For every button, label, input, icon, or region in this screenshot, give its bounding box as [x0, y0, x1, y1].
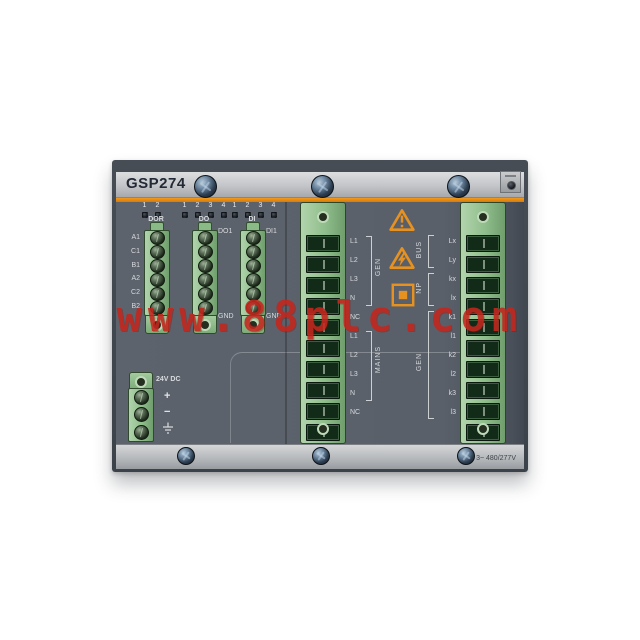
mains-bracket: [366, 331, 372, 401]
terminal-slot-icon: [306, 319, 340, 336]
pin-label: N: [350, 291, 360, 306]
gen-bracket-right: [428, 311, 434, 419]
pin-label: l2: [438, 367, 456, 382]
led-number: 2: [196, 202, 200, 210]
terminal-slot-icon: [306, 340, 340, 357]
screw-terminal-icon: [150, 259, 165, 273]
terminal-slot-icon: [306, 298, 340, 315]
mounting-hole-icon: [199, 319, 211, 331]
connector-body: [144, 230, 170, 316]
screw-terminal-icon: [150, 245, 165, 259]
connector-flange: [193, 315, 217, 334]
pin-label: kx: [438, 272, 456, 287]
screw-terminal-icon: [134, 425, 149, 440]
gen-bracket: [366, 236, 372, 306]
screw-icon: [312, 447, 330, 465]
pin-label: L3: [350, 367, 360, 382]
terminal-slot-icon: [306, 235, 340, 252]
pin-label: C2: [122, 288, 140, 297]
pin-label: L2: [350, 348, 360, 363]
terminal-slot-icon: [466, 403, 500, 420]
mounting-hole-icon: [317, 423, 329, 435]
np-bracket: [428, 273, 434, 306]
pin-label: k3: [438, 386, 456, 401]
pin-label: Lx: [438, 234, 456, 249]
terminal-slot-icon: [466, 235, 500, 252]
screw-terminal-icon: [198, 301, 213, 315]
double-insulation-icon: [390, 282, 416, 308]
screw-terminal-icon: [198, 287, 213, 301]
gsp274-module: GSP274 1 2 1 2 3 4 1 2 3 4 DOR DO DI DO1…: [112, 160, 528, 472]
pin-label: NC: [350, 310, 360, 325]
led-number: 3: [209, 202, 213, 210]
led-number: 1: [233, 202, 237, 210]
dor-pin-labels: A1 C1 B1 A2 C2 B2: [122, 231, 140, 313]
led-number: 2: [156, 202, 160, 210]
screw-icon: [177, 447, 195, 465]
pin-label: lx: [438, 291, 456, 306]
screw-icon: [194, 175, 217, 198]
plus-terminal-label: +: [164, 391, 170, 402]
led-number: 1: [183, 202, 187, 210]
gen-bracket-right-label: GEN: [416, 353, 423, 371]
led-indicator-icon: [221, 212, 227, 218]
screw-icon: [447, 175, 470, 198]
pin-label: k1: [438, 310, 456, 325]
screw-terminal-icon: [134, 407, 149, 422]
mains-bracket-label: MAINS: [375, 346, 382, 373]
plug-label-di1: DI1: [266, 227, 277, 236]
terminal-slot-icon: [466, 256, 500, 273]
screw-terminal-icon: [150, 287, 165, 301]
screw-terminal-icon: [198, 245, 213, 259]
screw-terminal-icon: [150, 231, 165, 245]
pin-label: k2: [438, 348, 456, 363]
gen-bracket-label: GEN: [375, 258, 382, 276]
mounting-hole-icon: [151, 319, 163, 331]
pin-label: l3: [438, 405, 456, 420]
gen-mains-pin-labels: L1 L2 L3 N NC L1 L2 L3 N NC: [350, 234, 360, 420]
pin-label: Ly: [438, 253, 456, 268]
screw-terminal-icon: [246, 301, 261, 315]
terminal-slot-icon: [306, 277, 340, 294]
power-label: 24V DC: [156, 375, 181, 384]
terminal-slot-icon: [306, 361, 340, 378]
gen-mains-connector: [300, 202, 346, 444]
warning-triangle-icon: [388, 206, 416, 234]
bus-bracket-label: BUS: [416, 241, 423, 258]
mounting-hole-icon: [477, 211, 489, 223]
screw-terminal-icon: [246, 245, 261, 259]
model-label: GSP274: [126, 175, 186, 192]
pin-label: A1: [122, 233, 140, 242]
mounting-hole-icon: [317, 211, 329, 223]
pin-label: L2: [350, 253, 360, 268]
terminal-slot-icon: [466, 382, 500, 399]
terminal-slot-icon: [306, 382, 340, 399]
terminal-slot-icon: [466, 319, 500, 336]
terminal-slots: [306, 235, 340, 441]
pin-label: L1: [350, 234, 360, 249]
screw-terminal-icon: [150, 301, 165, 315]
mounting-hole-icon: [247, 319, 259, 331]
terminal-slot-icon: [466, 277, 500, 294]
screw-terminal-icon: [198, 259, 213, 273]
led-indicator-icon: [271, 212, 277, 218]
terminal-slot-icon: [306, 403, 340, 420]
pin-label: N: [350, 386, 360, 401]
gnd-label-di: GND: [266, 312, 282, 321]
terminal-slot-icon: [306, 256, 340, 273]
screw-icon: [311, 175, 334, 198]
mounting-hole-icon: [477, 423, 489, 435]
pin-label: C1: [122, 247, 140, 256]
connector-body: [240, 230, 266, 316]
gnd-label-do: GND: [218, 312, 234, 321]
screw-icon: [457, 447, 475, 465]
screw-terminal-icon: [150, 273, 165, 287]
connector-flange: [145, 315, 169, 334]
status-led-icon: [507, 181, 516, 190]
screw-terminal-icon: [246, 231, 261, 245]
led-indicator-icon: [232, 212, 238, 218]
bus-np-gen-connector: [460, 202, 506, 444]
voltage-rating-label: 3~ 480/277V: [476, 454, 516, 463]
led-number: 4: [272, 202, 276, 210]
terminal-slot-icon: [466, 298, 500, 315]
connector-flange: [241, 315, 265, 334]
screw-terminal-icon: [246, 259, 261, 273]
connector-body: [128, 388, 154, 442]
pin-label: L1: [350, 329, 360, 344]
connector-body: [192, 230, 218, 316]
led-number: 1: [143, 202, 147, 210]
pin-label: l1: [438, 329, 456, 344]
pin-label: NC: [350, 405, 360, 420]
module-divider: [285, 202, 287, 444]
status-led-module: [500, 171, 521, 193]
screw-terminal-icon: [198, 273, 213, 287]
minus-terminal-label: −: [164, 407, 170, 418]
screw-terminal-icon: [134, 390, 149, 405]
pin-label: B1: [122, 261, 140, 270]
panel-seam: [230, 352, 499, 443]
pin-label: L3: [350, 272, 360, 287]
screw-terminal-icon: [246, 287, 261, 301]
terminal-slots: [466, 235, 500, 441]
led-number: 4: [222, 202, 226, 210]
mounting-hole-icon: [135, 376, 147, 388]
plug-label-do1: DO1: [218, 227, 232, 236]
led-indicator-icon: [182, 212, 188, 218]
screw-terminal-icon: [198, 231, 213, 245]
pin-label: A2: [122, 274, 140, 283]
status-led-label: [505, 175, 516, 177]
bus-bracket: [428, 235, 434, 268]
led-number: 3: [259, 202, 263, 210]
bus-np-gen-pin-labels: Lx Ly kx lx k1 l1 k2 l2 k3 l3: [438, 234, 456, 420]
terminal-slot-icon: [466, 361, 500, 378]
pin-label: B2: [122, 302, 140, 311]
led-number: 2: [246, 202, 250, 210]
np-bracket-label: NP: [416, 282, 423, 294]
earth-ground-icon: [162, 422, 174, 434]
electric-shock-warning-icon: [388, 244, 416, 272]
screw-terminal-icon: [246, 273, 261, 287]
terminal-slot-icon: [466, 340, 500, 357]
